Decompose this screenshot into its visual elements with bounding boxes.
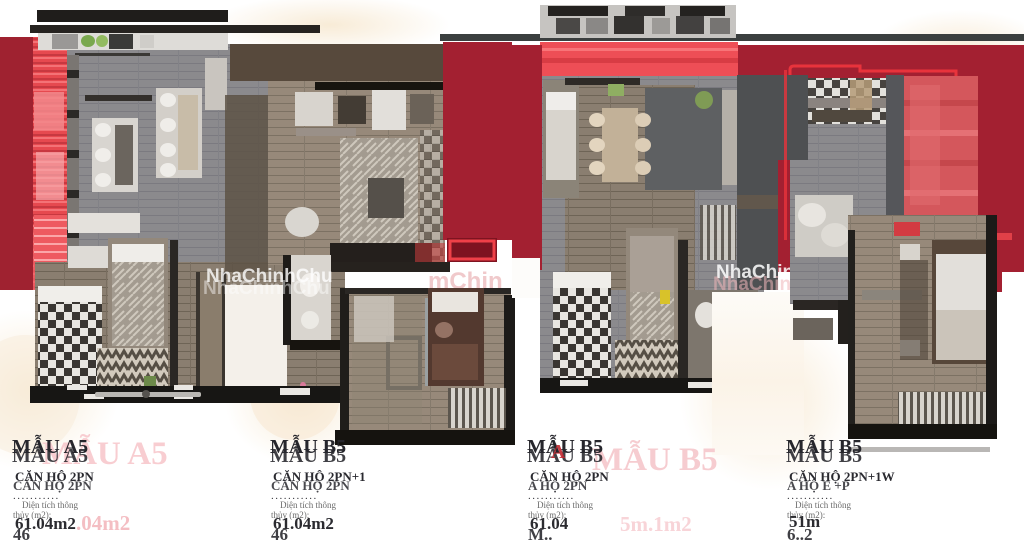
- svg-text:46: 46: [13, 525, 30, 543]
- svg-text:.04m2: .04m2: [76, 511, 130, 535]
- svg-text:46: 46: [271, 525, 288, 543]
- svg-text:MẪU B5: MẪU B5: [592, 439, 718, 478]
- svg-text:Diện tích thông: Diện tích thông: [280, 500, 336, 510]
- svg-text:5m.1m2: 5m.1m2: [620, 512, 692, 536]
- svg-text:A: A: [551, 441, 566, 463]
- svg-text:Diện tích thông: Diện tích thông: [22, 500, 78, 510]
- svg-text:Diện tích thông: Diện tích thông: [537, 500, 593, 510]
- svg-text:NhaChinhChu: NhaChinhChu: [203, 278, 330, 299]
- svg-text:MẪU B5: MẪU B5: [786, 442, 862, 467]
- svg-text:MẪU B5: MẪU B5: [270, 442, 346, 467]
- svg-text:M..: M..: [528, 525, 553, 543]
- svg-text:Diện tích thông: Diện tích thông: [795, 500, 851, 510]
- svg-text:MẪU A5: MẪU A5: [12, 442, 88, 467]
- svg-text:6..2: 6..2: [787, 525, 813, 543]
